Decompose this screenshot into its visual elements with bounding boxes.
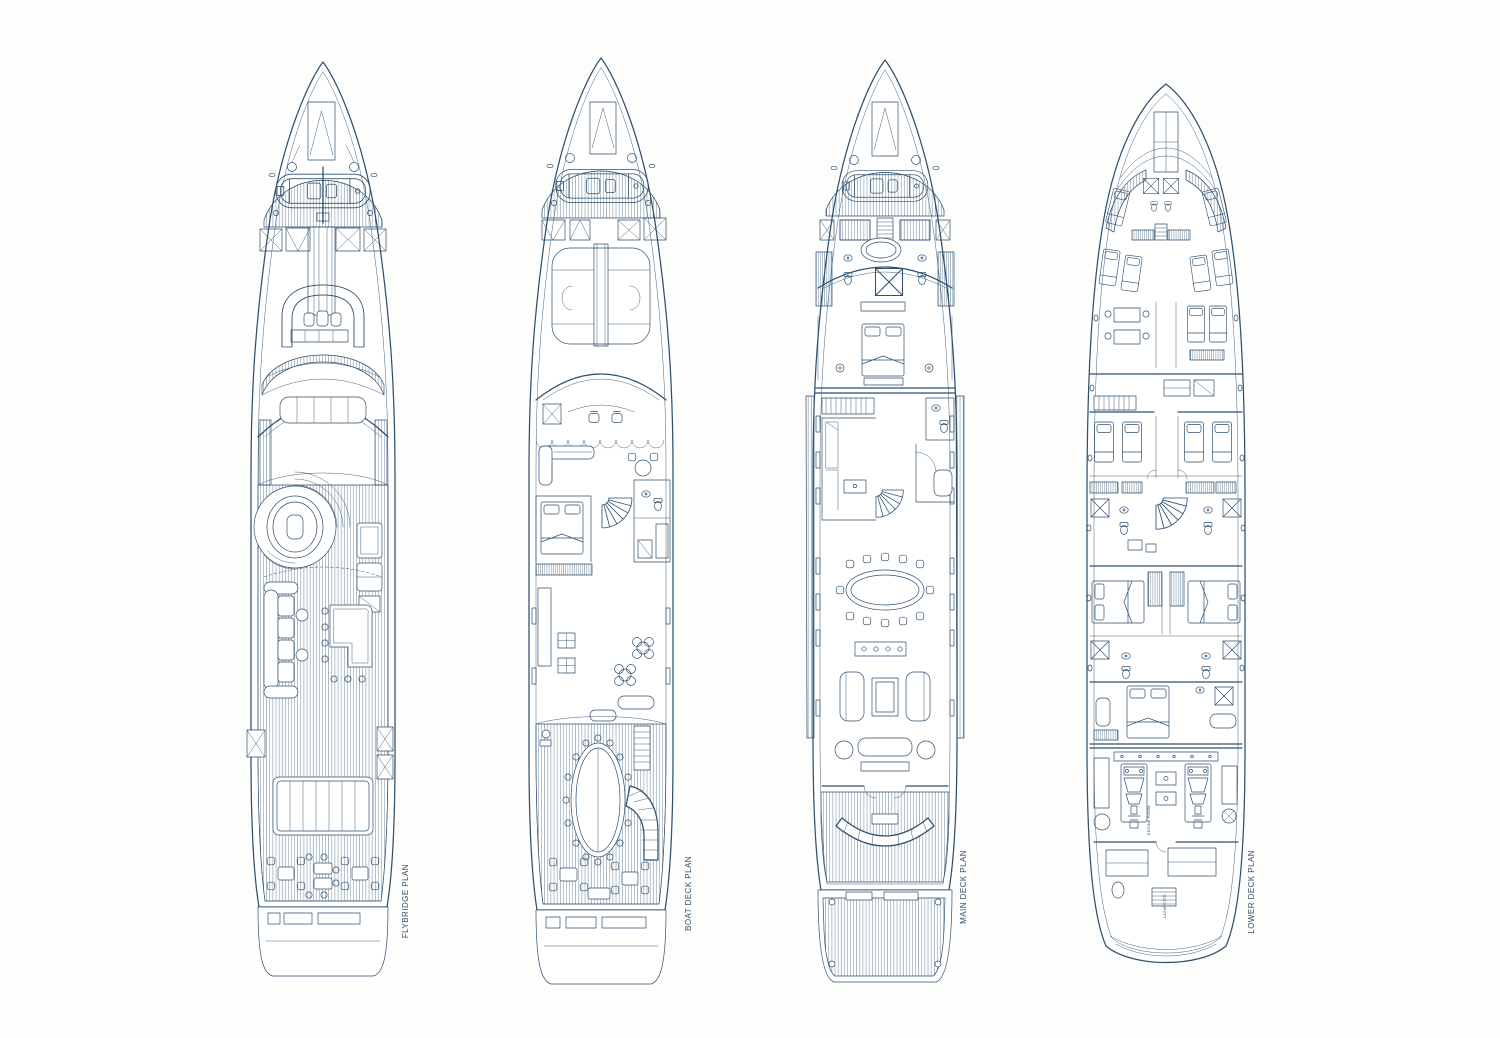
sideboard bbox=[855, 642, 906, 656]
engine-room-label: ENGINE ROOM bbox=[1147, 805, 1151, 835]
deck-label-main-deck: MAIN DECK PLAN bbox=[959, 850, 969, 924]
lazarette-label: LAZARETTE bbox=[1163, 894, 1167, 918]
swim-platform bbox=[818, 890, 952, 982]
boat-deck-plan bbox=[506, 48, 696, 998]
main-deck-plan bbox=[788, 50, 983, 995]
flybridge-plan-drawing bbox=[228, 55, 418, 990]
lower-deck-plan: ENGINE ROOM LAZARETTE bbox=[1070, 78, 1265, 998]
deck-label-flybridge: FLYBRIDGE PLAN bbox=[401, 864, 411, 938]
sun-pad bbox=[273, 777, 373, 835]
boat-deck-plan-drawing bbox=[506, 48, 696, 998]
deck-label-lower-deck: LOWER DECK PLAN bbox=[1247, 850, 1257, 934]
stern-platform bbox=[536, 910, 666, 984]
stern-platform bbox=[258, 907, 388, 976]
deck-label-boat-deck: BOAT DECK PLAN bbox=[684, 856, 694, 931]
sun-shelf bbox=[357, 523, 382, 612]
deck-plans-sheet: FLYBRIDGE PLAN bbox=[0, 0, 1500, 1038]
flybridge-plan bbox=[228, 55, 418, 990]
lower-deck-plan-drawing: ENGINE ROOM LAZARETTE bbox=[1070, 78, 1265, 998]
main-deck-plan-drawing bbox=[788, 50, 983, 995]
